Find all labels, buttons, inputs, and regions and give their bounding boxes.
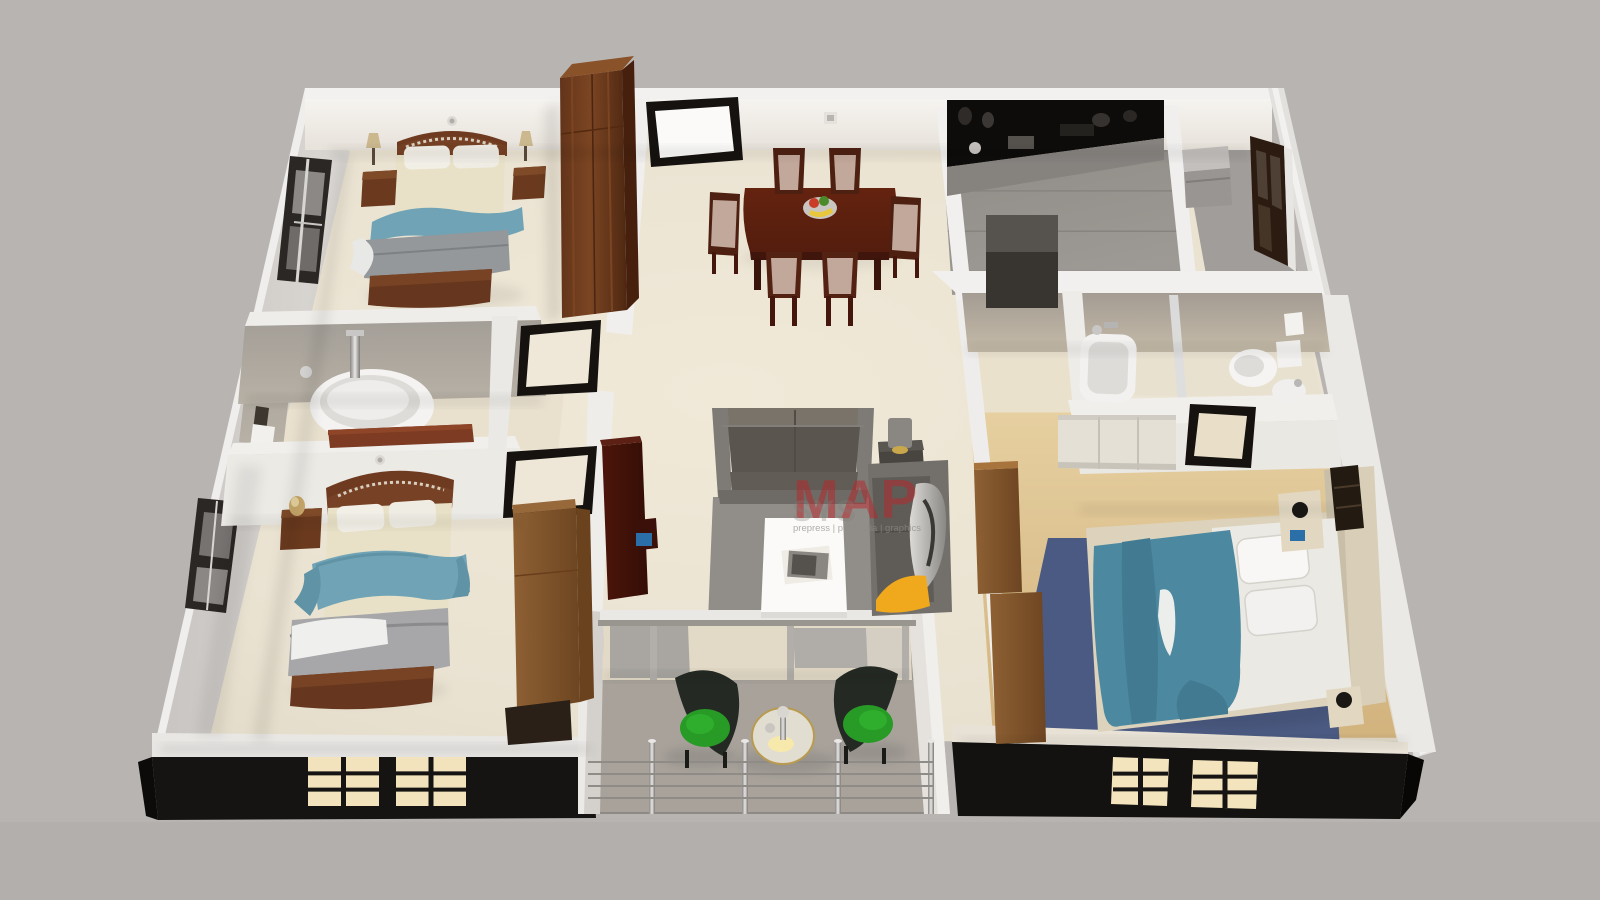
svg-text:prepress | premedia | graphics: prepress | premedia | graphics — [793, 523, 921, 534]
